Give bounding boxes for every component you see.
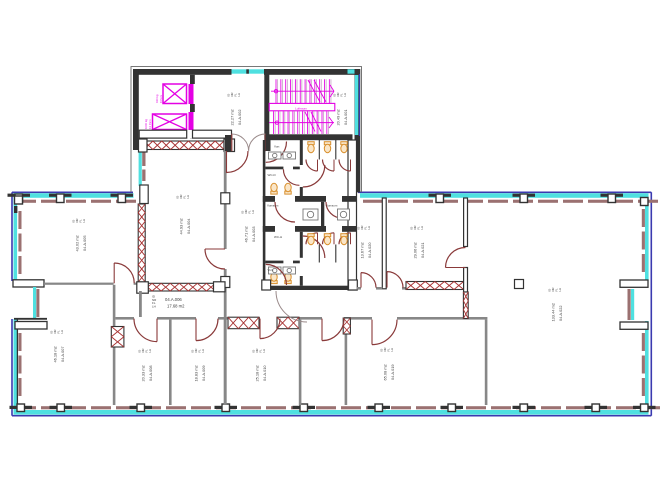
svg-text:04.A.006: 04.A.006 bbox=[165, 297, 182, 302]
svg-text:04.A.008: 04.A.008 bbox=[148, 365, 153, 381]
svg-text:ID: ID bbox=[410, 227, 414, 230]
svg-text:17.68 m2: 17.68 m2 bbox=[167, 304, 185, 309]
svg-text:FL: FL bbox=[363, 226, 367, 230]
svg-text:29.06 m2: 29.06 m2 bbox=[413, 242, 418, 258]
svg-text:Vorr.: Vorr. bbox=[268, 268, 274, 272]
svg-text:NR: NR bbox=[255, 349, 259, 353]
svg-text:ID: ID bbox=[241, 211, 245, 214]
svg-text:NR: NR bbox=[141, 349, 145, 353]
svg-text:LH: LH bbox=[201, 349, 205, 352]
svg-text:FL: FL bbox=[197, 349, 201, 353]
svg-text:LH: LH bbox=[60, 330, 64, 333]
svg-text:ID: ID bbox=[333, 94, 337, 97]
svg-text:WC-H: WC-H bbox=[274, 235, 282, 239]
svg-text:Vorraum: Vorraum bbox=[326, 204, 338, 208]
svg-text:Luftraum: Luftraum bbox=[295, 106, 307, 110]
svg-text:NR: NR bbox=[383, 348, 387, 352]
svg-text:FL: FL bbox=[247, 210, 251, 214]
svg-text:LH: LH bbox=[186, 195, 190, 198]
svg-text:13 Pers: 13 Pers bbox=[148, 119, 152, 129]
svg-text:20.49 m2: 20.49 m2 bbox=[336, 109, 341, 125]
svg-text:LH: LH bbox=[390, 348, 394, 351]
svg-text:FL: FL bbox=[554, 288, 558, 292]
svg-text:46.18 m2: 46.18 m2 bbox=[53, 346, 58, 362]
svg-text:04.A.002: 04.A.002 bbox=[237, 109, 242, 125]
svg-text:ID: ID bbox=[227, 94, 231, 97]
svg-text:FL: FL bbox=[339, 93, 343, 97]
svg-text:Vorr.: Vorr. bbox=[274, 145, 280, 149]
svg-text:ID: ID bbox=[176, 196, 180, 199]
svg-text:ID: ID bbox=[380, 349, 384, 352]
svg-text:NR: NR bbox=[413, 226, 417, 230]
svg-text:ID: ID bbox=[72, 220, 76, 223]
svg-text:22.27 m2: 22.27 m2 bbox=[230, 109, 235, 125]
svg-text:LH: LH bbox=[148, 349, 152, 352]
svg-text:FL: FL bbox=[258, 349, 262, 353]
svg-text:LH: LH bbox=[420, 226, 424, 229]
svg-text:04.A.020: 04.A.020 bbox=[367, 242, 372, 258]
svg-text:ID: ID bbox=[138, 350, 142, 353]
svg-text:LH: LH bbox=[343, 93, 347, 96]
svg-text:04.A.005: 04.A.005 bbox=[82, 235, 87, 251]
svg-text:NR: NR bbox=[336, 93, 340, 97]
svg-text:ID: ID bbox=[191, 350, 195, 353]
svg-text:FL: FL bbox=[233, 93, 237, 97]
svg-text:04.A.009: 04.A.009 bbox=[201, 365, 206, 381]
svg-text:ID: ID bbox=[357, 227, 361, 230]
svg-text:FL: FL bbox=[78, 219, 82, 223]
svg-text:65.08 m2: 65.08 m2 bbox=[383, 364, 388, 380]
svg-text:25.18 m2: 25.18 m2 bbox=[255, 365, 260, 381]
svg-text:ID: ID bbox=[252, 350, 256, 353]
svg-text:13.67 m2: 13.67 m2 bbox=[360, 242, 365, 258]
svg-text:04.A.010: 04.A.010 bbox=[262, 365, 267, 381]
svg-text:ID: ID bbox=[50, 331, 54, 334]
svg-text:04.A.021: 04.A.021 bbox=[420, 242, 425, 258]
svg-text:FL: FL bbox=[416, 226, 420, 230]
svg-text:04.A.003: 04.A.003 bbox=[251, 226, 256, 242]
svg-text:NR: NR bbox=[75, 219, 79, 223]
svg-text:LH: LH bbox=[251, 210, 255, 213]
svg-text:LH: LH bbox=[237, 93, 241, 96]
svg-text:WC-D: WC-D bbox=[268, 173, 277, 177]
svg-text:Vorraum: Vorraum bbox=[267, 204, 279, 208]
svg-text:FL: FL bbox=[386, 348, 390, 352]
svg-text:NR: NR bbox=[194, 349, 198, 353]
svg-text:LH: LH bbox=[82, 219, 86, 222]
svg-text:LH: LH bbox=[152, 305, 156, 309]
svg-text:20.33 m2: 20.33 m2 bbox=[141, 365, 146, 381]
svg-text:8 Pers: 8 Pers bbox=[159, 94, 163, 103]
svg-text:04.A.022: 04.A.022 bbox=[558, 305, 563, 321]
svg-text:NR: NR bbox=[360, 226, 364, 230]
svg-text:LH: LH bbox=[262, 349, 266, 352]
svg-text:04.A.004: 04.A.004 bbox=[186, 218, 191, 234]
svg-text:NR: NR bbox=[179, 195, 183, 199]
svg-text:FL: FL bbox=[144, 349, 148, 353]
svg-text:133.44 m2: 133.44 m2 bbox=[551, 303, 556, 321]
svg-text:18.83 m2: 18.83 m2 bbox=[194, 365, 199, 381]
svg-text:04.A.019: 04.A.019 bbox=[390, 364, 395, 380]
svg-text:46.71 m2: 46.71 m2 bbox=[244, 226, 249, 242]
svg-text:NR: NR bbox=[53, 330, 57, 334]
svg-text:04.A.007: 04.A.007 bbox=[60, 346, 65, 362]
svg-text:LH: LH bbox=[367, 226, 371, 229]
svg-text:FL: FL bbox=[56, 330, 60, 334]
svg-text:LH: LH bbox=[558, 288, 562, 291]
svg-text:ID: ID bbox=[548, 289, 552, 292]
svg-text:NR: NR bbox=[244, 210, 248, 214]
svg-text:44.93 m2: 44.93 m2 bbox=[179, 218, 184, 234]
svg-text:FL: FL bbox=[182, 195, 186, 199]
svg-text:NR: NR bbox=[551, 288, 555, 292]
svg-text:NR: NR bbox=[230, 93, 234, 97]
svg-text:43.02 m2: 43.02 m2 bbox=[75, 235, 80, 251]
svg-text:04.A.001: 04.A.001 bbox=[343, 109, 348, 125]
